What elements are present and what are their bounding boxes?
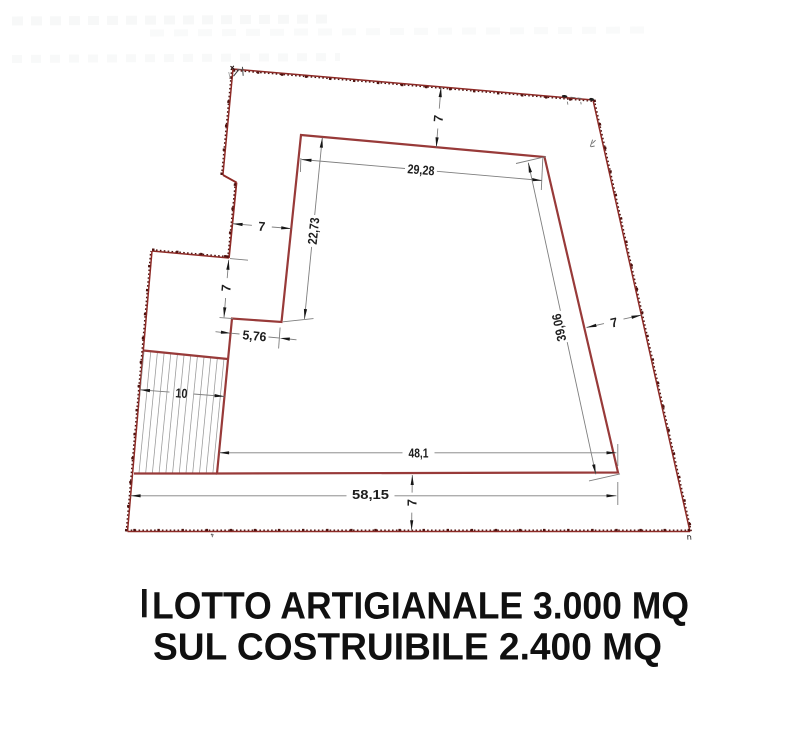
svg-text:7: 7 (431, 114, 447, 122)
svg-text:48,1: 48,1 (409, 445, 429, 460)
svg-text:22,73: 22,73 (305, 217, 323, 245)
svg-text:7: 7 (258, 219, 266, 235)
svg-text:5,76: 5,76 (242, 327, 267, 344)
svg-text:LOTTO ARTIGIANALE 3.000 MQ: LOTTO ARTIGIANALE 3.000 MQ (152, 586, 689, 628)
svg-text:7: 7 (218, 284, 234, 292)
svg-text:7: 7 (405, 499, 420, 506)
svg-text:29,28: 29,28 (407, 161, 435, 178)
svg-text:58,15: 58,15 (352, 487, 389, 502)
svg-text:10: 10 (175, 385, 188, 401)
svg-text:SUL COSTRUIBILE 2.400 MQ: SUL COSTRUIBILE 2.400 MQ (153, 627, 662, 669)
